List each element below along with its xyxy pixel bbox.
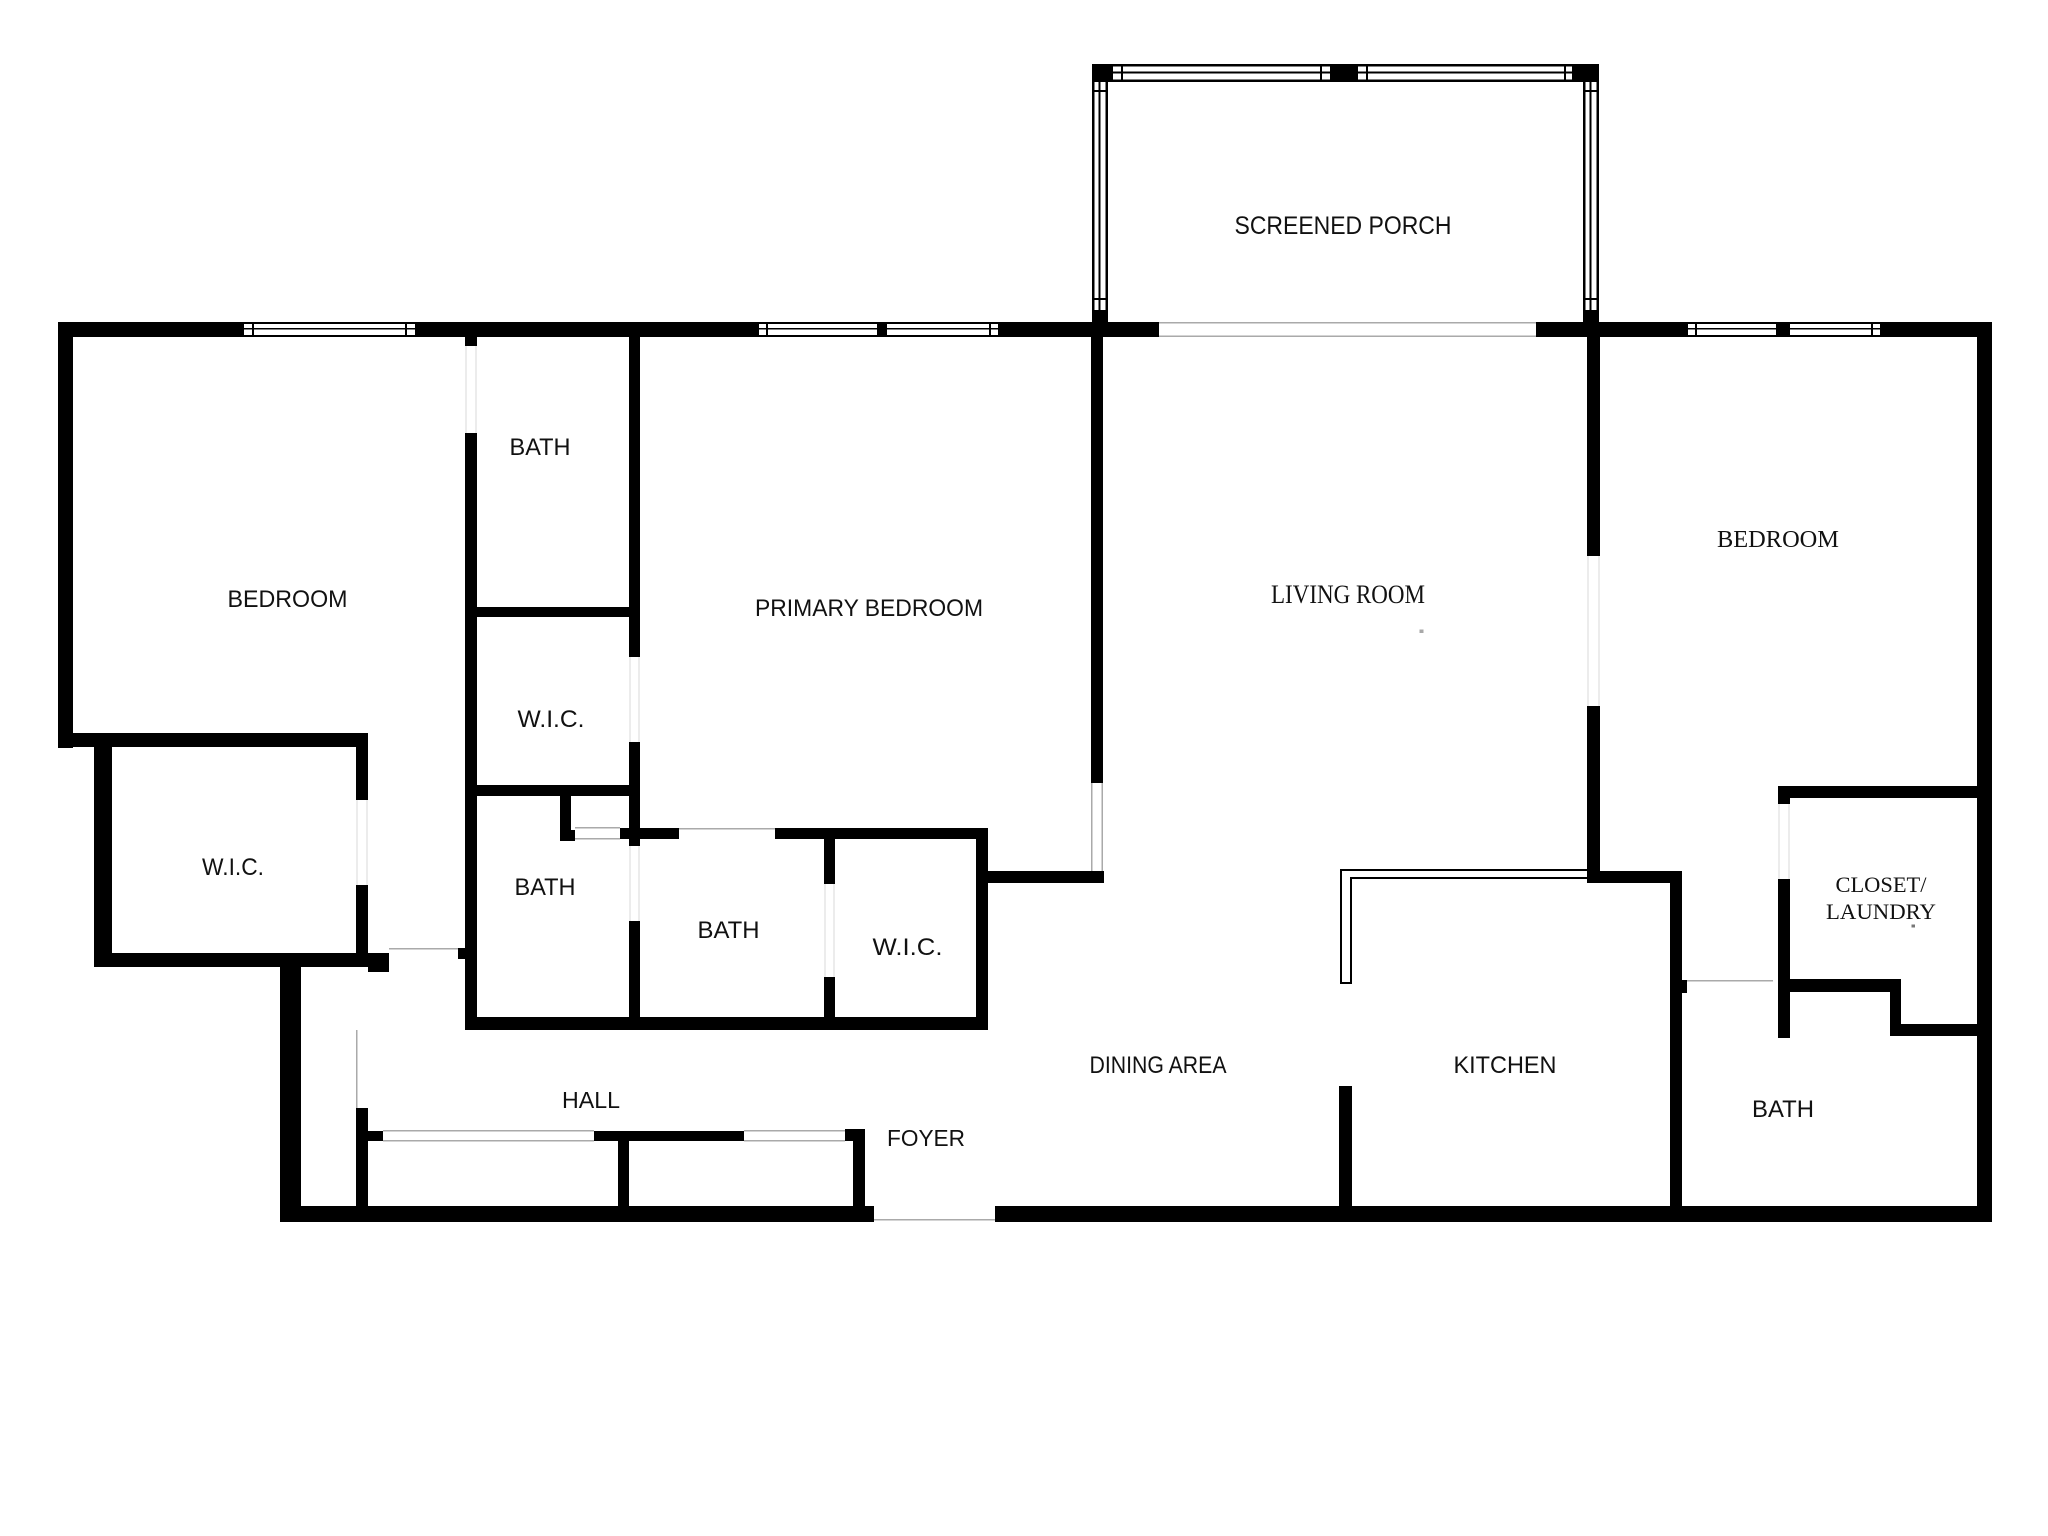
svg-text:BATH: BATH (515, 874, 576, 901)
svg-text:PRIMARY BEDROOM: PRIMARY BEDROOM (755, 595, 983, 622)
svg-text:BEDROOM: BEDROOM (228, 586, 348, 613)
svg-text:KITCHEN: KITCHEN (1454, 1052, 1557, 1079)
svg-text:BEDROOM: BEDROOM (1717, 526, 1839, 553)
svg-text:CLOSET/: CLOSET/ (1836, 872, 1928, 897)
svg-text:FOYER: FOYER (887, 1125, 965, 1151)
svg-text:W.I.C.: W.I.C. (518, 706, 585, 733)
svg-text:SCREENED PORCH: SCREENED PORCH (1235, 212, 1452, 240)
svg-text:DINING AREA: DINING AREA (1090, 1052, 1227, 1079)
svg-text:LAUNDRY: LAUNDRY (1826, 899, 1936, 924)
svg-text:BATH: BATH (1752, 1096, 1814, 1123)
svg-text:BATH: BATH (698, 917, 760, 944)
svg-text:HALL: HALL (562, 1087, 620, 1113)
svg-text:LIVING ROOM: LIVING ROOM (1271, 580, 1425, 609)
svg-text:W.I.C.: W.I.C. (873, 934, 943, 961)
svg-text:W.I.C.: W.I.C. (202, 854, 264, 881)
svg-text:BATH: BATH (510, 434, 571, 461)
